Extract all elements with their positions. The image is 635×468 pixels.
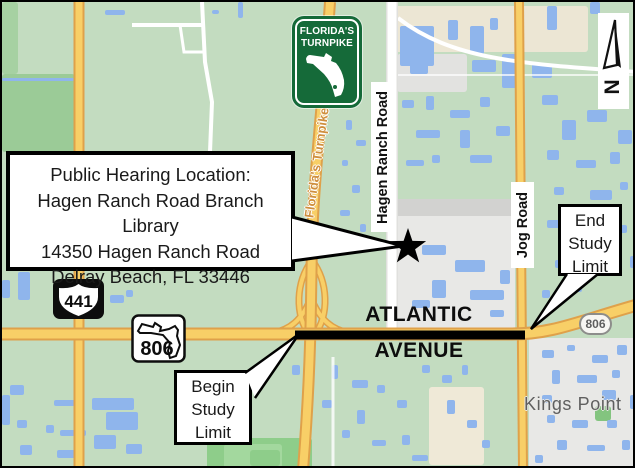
water-feature — [592, 355, 608, 363]
water-feature — [630, 395, 635, 409]
water-feature — [357, 410, 365, 424]
water-feature — [20, 445, 32, 455]
north-arrow: N — [598, 13, 629, 109]
turnpike-road-label: Florida's Turnpike — [293, 96, 339, 231]
water-feature — [462, 365, 468, 375]
water-feature — [54, 400, 84, 406]
water-feature — [94, 435, 116, 449]
water-feature — [557, 440, 567, 450]
water-feature — [2, 395, 10, 425]
landuse-patch — [2, 2, 18, 74]
water-feature — [502, 54, 516, 88]
kings-point-label: Kings Point — [524, 394, 622, 415]
atlantic-avenue-label-line1: ATLANTIC — [334, 303, 504, 327]
water-feature — [577, 375, 597, 383]
water-feature — [60, 430, 86, 436]
begin-callout-pointer — [245, 334, 299, 398]
sr806-oval-label: 806 — [585, 317, 605, 331]
water-feature — [432, 155, 440, 163]
water-feature — [620, 182, 628, 190]
water-feature — [106, 412, 138, 430]
minor-road — [202, 2, 212, 152]
water-feature — [570, 286, 582, 292]
water-feature — [554, 187, 564, 195]
water-feature — [342, 160, 348, 166]
water-feature — [356, 140, 366, 146]
water-feature — [612, 370, 620, 378]
water-feature — [587, 110, 607, 122]
water-feature — [126, 290, 133, 297]
hagen-ranch-road-label: Hagen Ranch Road — [371, 82, 395, 232]
landuse-patch — [250, 450, 280, 466]
begin-study-limit-callout: Begin Study Limit — [174, 370, 252, 445]
water-feature — [410, 60, 428, 74]
water-feature — [238, 2, 243, 18]
water-feature — [126, 444, 142, 454]
water-feature — [342, 430, 350, 438]
water-feature — [535, 455, 543, 463]
water-feature — [406, 160, 424, 166]
water-feature — [448, 20, 458, 40]
water-feature — [482, 440, 490, 448]
water-feature — [92, 398, 134, 410]
turnpike-shield-text: FLORIDA'S TURNPIKE — [300, 26, 354, 49]
water-feature — [532, 64, 552, 78]
water-feature — [617, 345, 627, 355]
water-feature — [372, 440, 386, 446]
water-feature — [10, 385, 24, 395]
water-feature — [352, 185, 360, 193]
water-feature — [572, 420, 588, 428]
landuse-patch — [2, 74, 75, 152]
water-feature — [547, 6, 557, 30]
water-feature — [17, 420, 27, 428]
water-feature — [607, 420, 617, 428]
water-feature — [542, 95, 558, 105]
hearing-line1: Public Hearing Location: — [10, 162, 291, 188]
sr806-number: 806 — [140, 338, 173, 360]
jog-road-label: Jog Road — [511, 182, 534, 268]
water-feature — [340, 210, 350, 216]
floridas-turnpike-shield: FLORIDA'S TURNPIKE — [295, 19, 359, 105]
water-feature — [470, 155, 492, 163]
public-hearing-callout: Public Hearing Location: Hagen Ranch Roa… — [6, 151, 295, 271]
water-feature — [622, 440, 630, 450]
water-feature — [562, 120, 576, 140]
hearing-line2: Hagen Ranch Road Branch Library — [10, 188, 291, 239]
hearing-line4: Delray Beach, FL 33446 — [10, 264, 291, 290]
end-study-limit-callout: End Study Limit — [558, 204, 622, 276]
water-feature — [455, 260, 485, 272]
water-feature — [542, 350, 554, 358]
water-feature — [472, 60, 496, 72]
water-feature — [470, 26, 484, 54]
water-feature — [630, 256, 635, 268]
water-feature — [447, 400, 455, 414]
sr806-oval-marker: 806 — [579, 313, 612, 335]
water-feature — [105, 10, 125, 15]
water-feature — [402, 435, 410, 445]
water-feature — [2, 280, 10, 298]
water-feature — [402, 100, 414, 108]
sr806-shield: 806 — [131, 314, 186, 363]
water-feature — [432, 280, 446, 298]
water-feature — [322, 400, 332, 408]
hearing-line3: 14350 Hagen Ranch Road — [10, 239, 291, 265]
water-feature — [590, 190, 612, 200]
landuse-patch — [395, 199, 515, 216]
water-feature — [470, 290, 504, 300]
water-feature — [547, 415, 555, 423]
water-feature — [57, 450, 77, 458]
water-feature — [352, 380, 368, 388]
water-feature — [576, 160, 596, 168]
water-feature — [332, 365, 338, 379]
water-feature — [377, 385, 385, 393]
water-feature — [547, 150, 559, 160]
water-feature — [422, 245, 446, 255]
water-feature — [360, 224, 366, 232]
water-feature — [442, 375, 452, 383]
water-feature — [2, 78, 74, 81]
water-feature — [618, 130, 632, 144]
florida-silhouette-icon — [305, 49, 349, 101]
minor-road — [180, 25, 205, 52]
north-arrow-n: N — [599, 79, 623, 94]
water-feature — [426, 96, 434, 110]
water-feature — [480, 97, 490, 107]
water-feature — [610, 152, 620, 164]
water-feature — [542, 290, 550, 298]
water-feature — [412, 455, 428, 461]
water-feature — [416, 130, 440, 138]
water-feature — [110, 295, 124, 303]
water-feature — [490, 18, 498, 30]
map-container: 806 Hagen Ranch Road Jog Road Florida's … — [0, 0, 635, 468]
water-feature — [467, 420, 477, 428]
water-feature — [292, 365, 300, 375]
water-feature — [496, 126, 510, 136]
atlantic-avenue-label-line2: AVENUE — [334, 339, 504, 363]
water-feature — [450, 110, 470, 118]
us441-number: 441 — [64, 292, 92, 311]
water-feature — [500, 270, 510, 284]
water-feature — [397, 400, 407, 408]
water-feature — [552, 370, 560, 384]
water-feature — [460, 130, 470, 148]
water-feature — [567, 345, 575, 351]
water-feature — [422, 365, 430, 373]
water-feature — [587, 445, 605, 451]
water-feature — [46, 425, 54, 433]
north-arrow-icon — [598, 13, 629, 109]
water-feature — [212, 10, 219, 14]
water-feature — [346, 120, 352, 130]
